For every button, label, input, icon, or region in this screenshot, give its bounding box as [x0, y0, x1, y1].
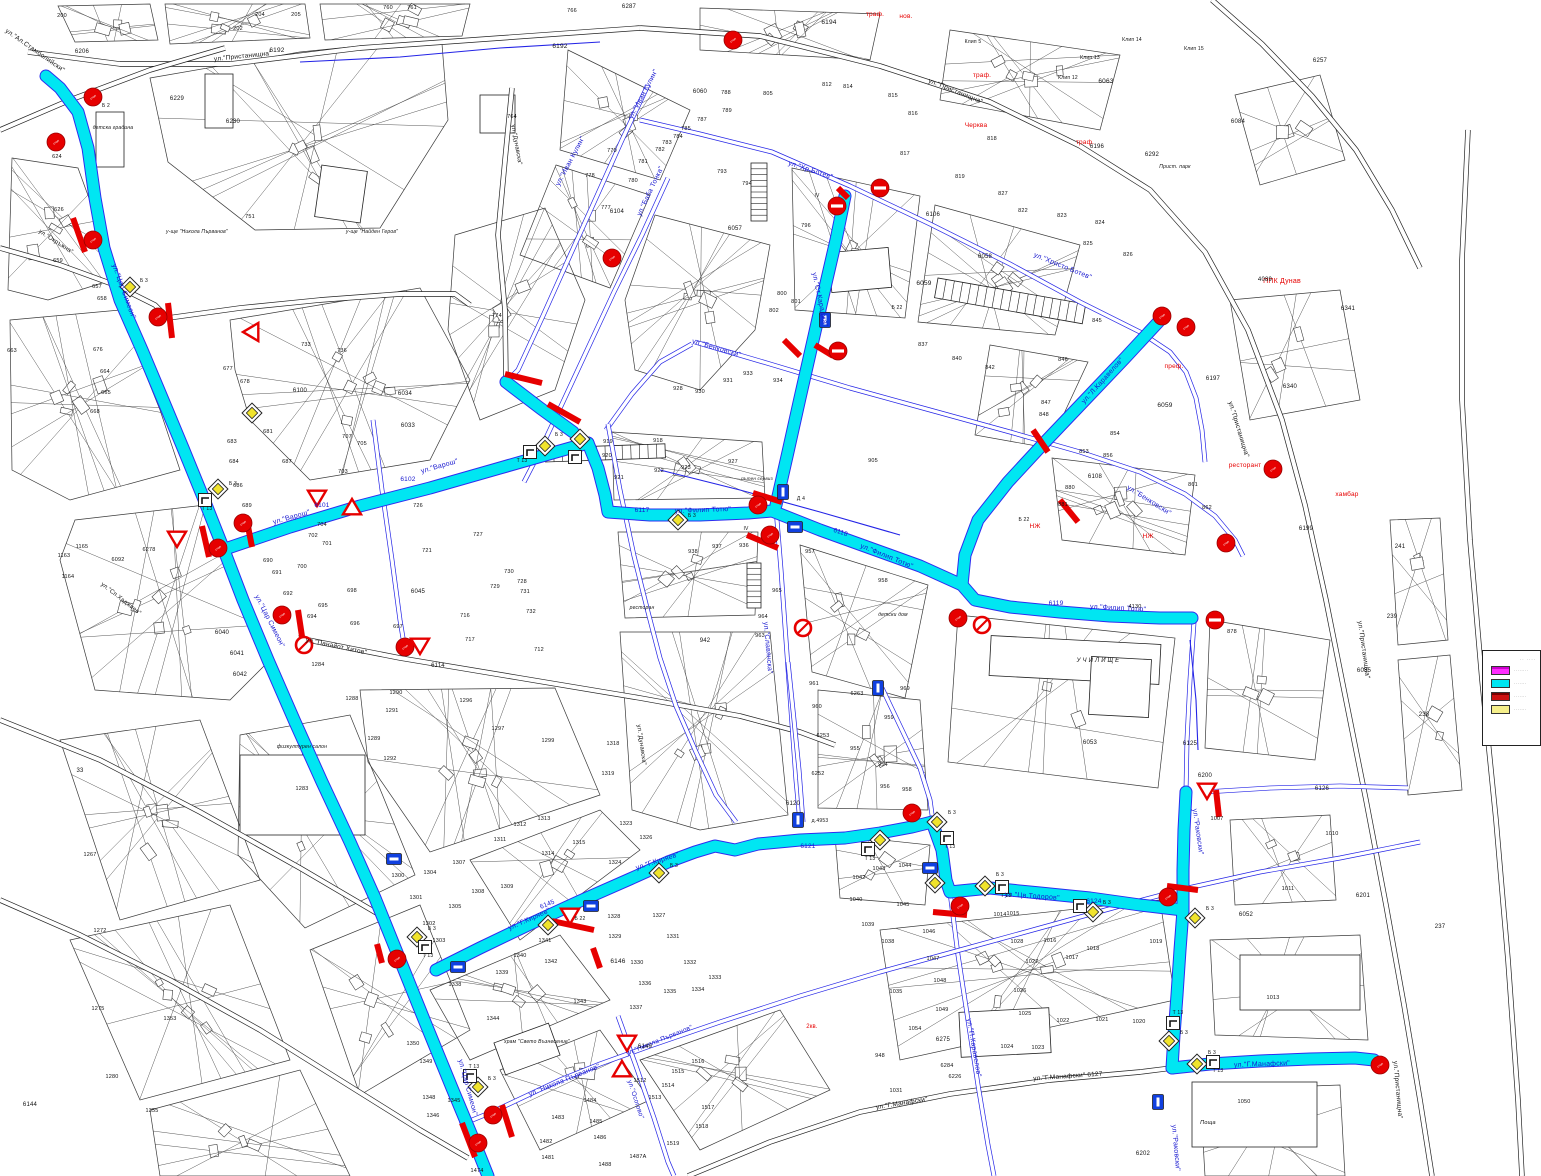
parcel-number-label: Т 13	[865, 856, 876, 862]
building-outline	[349, 974, 364, 990]
building-outline	[515, 280, 531, 294]
parcel-number-label: Т 13	[469, 1064, 480, 1070]
parcel-line	[889, 962, 1169, 988]
parcel-number-label: IV	[743, 526, 749, 532]
parcel-number-label: 1040	[849, 897, 862, 903]
parcel-number-label: 687	[282, 459, 292, 465]
parcel-number-label: 1329	[608, 934, 621, 940]
parcel-line	[894, 922, 1163, 1020]
street-label: ул."Раковски"	[1191, 808, 1204, 855]
parcel-number-label: 6092	[111, 557, 124, 563]
parcel-number-label: 6253	[816, 733, 829, 739]
parcel-line	[135, 513, 192, 697]
parcel-number-label: 6117	[635, 507, 650, 514]
building-outline	[991, 262, 1004, 275]
give-way-sign-icon	[613, 1061, 631, 1076]
junction-sign-icon	[569, 451, 582, 464]
parcel-number-label: 6257	[1313, 58, 1328, 64]
parcel-number-label: 845	[1092, 318, 1102, 324]
no-entry-bar	[1209, 618, 1221, 621]
parcel-number-label: 853	[1079, 449, 1089, 455]
parcel-line	[331, 8, 469, 40]
parcel-number-label: 1327	[652, 913, 665, 919]
parcel-number-label: 657	[92, 284, 102, 290]
parcel-line	[240, 318, 447, 425]
parcel-line	[236, 374, 456, 406]
parcel-number-label: Б 3	[1180, 1030, 1188, 1036]
parcel-number-label: 948	[875, 1053, 885, 1059]
parcel-number-label: 959	[884, 715, 894, 721]
building-outline	[1266, 839, 1277, 849]
building-outline	[1041, 965, 1054, 973]
parcel-number-label: 856	[1103, 453, 1113, 459]
parcel-number-label: 6084	[1231, 119, 1246, 125]
parcel-number-label: 964	[758, 614, 768, 620]
parcel-number-label: 4089	[1258, 277, 1273, 283]
parcel-number-label: 1163	[58, 553, 71, 559]
parcel-number-label: 696	[350, 621, 360, 627]
parcel-line	[857, 696, 881, 809]
parcel-line	[1404, 698, 1454, 739]
parcel-number-label: 785	[681, 126, 691, 132]
parcel-number-label: 6149	[638, 1044, 653, 1050]
parcel-number-label: 690	[263, 558, 273, 564]
parcel-line	[190, 4, 302, 43]
parcel-number-label: 1283	[295, 786, 308, 792]
parcel-line	[572, 170, 581, 277]
map-viewport[interactable]: { "map": { "width": 1541, "height": 1176…	[0, 0, 1541, 1176]
parcel-number-label: 854	[1110, 431, 1120, 437]
parcel-number-label: 6197	[1206, 376, 1221, 382]
parcel-number-label: 1015	[1006, 911, 1019, 917]
parcel-number-label: 1314	[541, 851, 554, 857]
street-label: ул."Иван Кулин"	[555, 135, 587, 187]
parcel-number-label: 1474	[470, 1168, 483, 1174]
parcel-number-label: 826	[1123, 252, 1133, 258]
legend-item-label: ·······	[1514, 694, 1527, 699]
parcel-number-label: 6106	[926, 212, 941, 218]
priority-road-sign-icon	[242, 403, 262, 423]
parcel-block	[320, 4, 470, 40]
parcel-number-label: 728	[517, 579, 527, 585]
parcel-number-label: 816	[908, 111, 918, 117]
street-label: ул."Ал.Стамболийски"	[4, 27, 67, 74]
annotation-label: Черква	[965, 122, 988, 129]
parcel-number-label: 1054	[908, 1026, 921, 1032]
parcel-number-label: 934	[773, 378, 783, 384]
parcel-line	[1250, 117, 1332, 151]
parcel-number-label: Т 13	[1213, 1068, 1224, 1074]
junction-sign-icon	[524, 446, 537, 459]
parcel-number-label: 1348	[422, 1095, 435, 1101]
parcel-number-label: 1344	[486, 1016, 499, 1022]
parcel-line	[804, 588, 923, 610]
parcel-number-label: 1330	[630, 960, 643, 966]
parcel-number-label: 237	[1435, 924, 1446, 930]
parcel-number-label: 774	[492, 313, 502, 319]
parcel-number-label: 1010	[1325, 831, 1338, 837]
annotation-label: НЖ	[1142, 533, 1153, 540]
parcel-number-label: 815	[888, 93, 898, 99]
parcel-number-label: 729	[490, 584, 500, 590]
parcel-number-label: 938	[688, 549, 698, 555]
parcel-block	[70, 905, 290, 1100]
building-outline	[96, 112, 124, 167]
street-label: ул."Дунавска"	[509, 124, 522, 165]
parcel-number-label: Клип 13	[1080, 55, 1100, 61]
parcel-number-label: 624	[52, 154, 62, 160]
parcel-number-label: 1025	[1018, 1011, 1031, 1017]
building-outline	[63, 381, 76, 395]
parcel-number-label: 6058	[978, 254, 993, 260]
parcel-block	[58, 4, 158, 42]
parcel-number-label: Б 3	[670, 863, 678, 869]
parcel-number-label: 777	[601, 205, 611, 211]
parcel-number-label: 764	[507, 114, 517, 120]
parcel-number-label: 6275	[936, 1037, 951, 1043]
parcel-number-label: 779	[607, 148, 617, 154]
parcel-line	[628, 243, 761, 323]
parcel-number-label: 931	[723, 378, 733, 384]
parcel-line	[301, 290, 408, 470]
legend-swatch	[1491, 666, 1510, 675]
road-blue	[506, 85, 648, 382]
parcel-number-label: 1486	[593, 1135, 606, 1141]
parcel-line	[61, 6, 149, 40]
annotation-label: ресторант	[1229, 462, 1262, 469]
parcel-number-label: Б 3	[555, 432, 563, 438]
parcel-number-label: Т 13	[423, 953, 434, 959]
building-outline	[50, 390, 64, 405]
parcel-number-label: 1018	[1086, 946, 1099, 952]
parcel-number-label: 761	[407, 5, 417, 11]
parcel-number-label: 6287	[622, 4, 637, 10]
parcel-number-label: 727	[473, 532, 483, 538]
parcel-number-label: 1332	[683, 960, 696, 966]
building-outline	[994, 995, 1002, 1008]
parcel-number-label: 1165	[76, 544, 89, 550]
street-label: ул."Пристанищна"	[1391, 1061, 1403, 1120]
parcel-number-label: 766	[567, 8, 577, 14]
parcel-number-label: Т 13	[1173, 1010, 1184, 1016]
road-closure-bar	[784, 340, 800, 356]
parcel-number-label: 840	[952, 356, 962, 362]
parcel-number-label: 1013	[1266, 995, 1279, 1001]
parcel-number-label: 861	[1188, 482, 1198, 488]
parcel-number-label: 1331	[666, 934, 679, 940]
parcel-number-label: 1308	[471, 889, 484, 895]
road-black	[28, 28, 640, 64]
parcel-number-label: 942	[700, 638, 711, 644]
parcel-number-label: Д 4	[797, 496, 805, 502]
parcel-number-label: 958	[878, 578, 888, 584]
junction-sign-icon	[941, 832, 954, 845]
parcel-number-label: 778	[585, 173, 595, 179]
road-black	[1212, 0, 1420, 268]
parcel-number-label: 6119	[1049, 600, 1064, 607]
parcel-number-label: 1017	[1065, 955, 1078, 961]
parcel-number-label: 730	[504, 569, 514, 575]
parcel-number-label: 817	[900, 151, 910, 157]
building-outline	[384, 387, 395, 395]
parcel-number-label: ресторан	[629, 605, 655, 611]
parcel-number-label: 1512	[633, 1078, 646, 1084]
road-blue	[373, 420, 406, 656]
parcel-number-label: 1318	[606, 741, 619, 747]
parcel-number-label: 33	[76, 768, 84, 774]
parcel-line	[1240, 362, 1354, 370]
parcel-number-label: Б 3	[1208, 1050, 1216, 1056]
parcel-number-label: 6278	[142, 547, 155, 553]
annotation-label: нов.	[899, 13, 912, 20]
one-way-sign-arrow	[791, 526, 800, 529]
building-outline	[182, 626, 191, 635]
parcel-number-label: 205	[291, 12, 301, 18]
parcel-line	[629, 281, 764, 327]
street-label: ул."Г.Манафски"	[875, 1096, 928, 1111]
parcel-number-label: 1345	[447, 1098, 460, 1104]
parcel-line	[1397, 518, 1431, 628]
parcel-number-label: 1043	[872, 866, 885, 872]
parcel-number-label: 1291	[385, 708, 398, 714]
parcel-number-label: 921	[614, 475, 624, 481]
street-label: ул."Никола Първанов"	[625, 1024, 694, 1057]
building-outline	[1105, 501, 1121, 519]
parcel-number-label: 6230	[226, 119, 241, 125]
road-black	[1212, 0, 1420, 268]
building-outline	[305, 146, 319, 164]
parcel-number-label: 6108	[1088, 474, 1103, 480]
parcel-number-label: 1272	[93, 928, 106, 934]
parcel-number-label: 782	[655, 147, 665, 153]
legend-item-label: ·······	[1514, 681, 1527, 686]
parcel-number-label: 878	[1227, 629, 1237, 635]
parcel-number-label: 6114	[431, 663, 445, 669]
parcel-line	[587, 175, 593, 282]
parcel-number-label: 239	[1387, 614, 1398, 620]
parcel-block	[620, 632, 788, 830]
parcel-number-label: 717	[465, 637, 475, 643]
parcel-number-label: 1518	[695, 1124, 708, 1130]
building-outline	[297, 841, 305, 851]
parcel-number-label: Б 2	[102, 103, 110, 109]
building-outline	[119, 22, 131, 35]
parcel-number-label: 6104	[610, 209, 625, 215]
parcel-number-label: Б 22	[574, 916, 585, 922]
parcel-number-label: Б 3	[688, 513, 696, 519]
parcel-number-label: 705	[357, 441, 367, 447]
parcel-line	[813, 549, 871, 688]
street-label: ул."Пристанищна"	[927, 78, 984, 106]
parcel-number-label: 736	[337, 348, 347, 354]
parcel-number-label: 848	[1039, 412, 1049, 418]
parcel-line	[679, 1046, 788, 1109]
parcel-number-label: 818	[987, 136, 997, 142]
parcel-number-label: 1315	[572, 840, 585, 846]
parcel-number-label: 825	[1083, 241, 1093, 247]
parcel-number-label: 1021	[1095, 1017, 1108, 1023]
parcel-number-label: 6085	[1357, 668, 1372, 674]
parcel-number-label: 1309	[500, 884, 513, 890]
parcel-number-label: 1048	[933, 978, 946, 984]
highlight-street	[962, 585, 1192, 618]
parcel-number-label: 1319	[601, 771, 614, 777]
parcel-line	[80, 553, 225, 634]
one-way-sign-arrow	[454, 966, 463, 969]
road-closure-bar	[593, 948, 600, 968]
parcel-line	[502, 848, 571, 902]
parcel-line	[807, 593, 926, 622]
building-outline	[359, 1032, 372, 1044]
parcel-number-label: у-ще "Найден Геров"	[345, 228, 398, 235]
building-outline	[494, 1023, 560, 1075]
parcel-number-label: 6100	[293, 388, 308, 394]
street-label: ул."Иван Кулин"	[628, 68, 660, 120]
parcel-number-label: 668	[90, 409, 100, 415]
parcel-line	[889, 907, 1161, 986]
street-label: ул."Христо Ботев"	[1033, 252, 1093, 282]
parcel-number-label: 702	[308, 533, 318, 539]
building-outline	[364, 992, 378, 1008]
parcel-number-label: 6124	[1086, 898, 1101, 905]
parcel-number-label: 1519	[666, 1141, 679, 1147]
parcel-number-label: 814	[843, 84, 853, 90]
parcel-number-label: 1045	[896, 902, 909, 908]
parcel-number-label: 202	[233, 26, 243, 32]
parcel-number-label: 6263	[850, 691, 863, 697]
parcel-number-label: 6292	[1145, 152, 1160, 158]
building-outline	[1010, 383, 1021, 391]
parcel-number-label: 1304	[423, 870, 436, 876]
parcel-line	[323, 987, 470, 1029]
road-closure-bar	[202, 526, 209, 557]
parcel-number-label: Клип 12	[1058, 75, 1078, 81]
legend-swatch	[1491, 705, 1510, 714]
parcel-line	[985, 376, 1079, 381]
parcel-number-label: 1311	[494, 837, 507, 843]
parcel-number-label: 1303	[432, 938, 445, 944]
parcel-number-label: 664	[100, 369, 110, 375]
parcel-number-label: 665	[101, 390, 111, 396]
parcel-number-label: 681	[263, 429, 273, 435]
parcel-number-label: 961	[809, 681, 819, 687]
parcel-number-label: 6226	[948, 1074, 961, 1080]
parcel-block	[560, 50, 690, 180]
parcel-number-label: у-ще "Никола Първанов"	[165, 229, 228, 235]
parcel-line	[1278, 294, 1297, 415]
parcel-number-label: 703	[338, 469, 348, 475]
no-entry-bar	[832, 349, 844, 352]
parcel-number-label: 694	[307, 614, 317, 620]
parcel-number-label: 6120	[786, 801, 801, 807]
parcel-number-label: 1515	[671, 1069, 684, 1075]
parcel-number-label: пътен сервиз	[741, 476, 773, 481]
building-outline	[564, 849, 575, 859]
parcel-line	[968, 921, 1100, 1017]
parcel-number-label: Прист. парк	[1159, 164, 1191, 170]
parcel-number-label: 1038	[881, 939, 894, 945]
road-closure-bar	[73, 218, 85, 252]
parcel-number-label: 238	[1419, 712, 1430, 718]
parcel-number-label: 1299	[541, 738, 554, 744]
parcel-number-label: 960	[812, 704, 822, 710]
parcel-number-label: 801	[791, 299, 801, 305]
parcel-number-label: 846	[1058, 357, 1068, 363]
building-outline	[315, 165, 368, 223]
street-label: ул."Дунавска"	[635, 724, 647, 765]
parcel-number-label: 936	[739, 543, 749, 549]
parcel-number-label: 760	[383, 5, 393, 11]
city-map-canvas[interactable]: стопстопстопстопстопстопстопстопстопстоп…	[0, 0, 1541, 1176]
parcel-number-label: 1284	[311, 662, 324, 668]
building-outline	[1257, 676, 1267, 684]
legend-title: ·· ····	[1491, 657, 1536, 662]
building-outline	[1071, 710, 1086, 727]
road-closure-bar	[552, 921, 594, 930]
parcel-line	[1255, 119, 1333, 166]
parcel-number-label: 697	[393, 624, 403, 630]
parcel-number-label: 6340	[1283, 384, 1298, 390]
parcel-number-label: Б 22	[1018, 517, 1029, 523]
building-outline	[1276, 125, 1288, 138]
building-outline	[794, 22, 805, 38]
parcel-number-label: Б 3	[229, 481, 237, 487]
parcel-line	[81, 625, 256, 637]
parcel-number-label: 689	[242, 503, 252, 509]
building-outline	[209, 1144, 219, 1157]
parcel-number-label: 704	[317, 522, 327, 528]
parcel-number-label: 788	[721, 90, 731, 96]
parcel-number-label: 626	[54, 207, 64, 213]
parcel-number-label: 1049	[935, 1007, 948, 1013]
one-way-sign-arrow	[782, 488, 785, 497]
parcel-number-label: Клип 5	[965, 39, 982, 45]
road-closure-bar	[502, 1105, 512, 1137]
parcel-number-label: 676	[93, 347, 103, 353]
street-label: ул."Никола Първанов"	[528, 1063, 602, 1098]
parcel-number-label: 6045	[411, 589, 426, 595]
building-outline	[1410, 557, 1424, 570]
parcel-number-label: 1292	[383, 756, 396, 762]
parcel-line	[428, 689, 512, 824]
building-outline	[462, 736, 478, 750]
parcel-number-label: 1022	[1056, 1018, 1069, 1024]
parcel-number-label: 920	[602, 453, 612, 459]
parcel-number-label: 1297	[491, 726, 504, 732]
parcel-number-label: 802	[769, 308, 779, 314]
parcel-number-label: 1346	[426, 1113, 439, 1119]
parcel-number-label: 659	[53, 258, 63, 264]
parcel-number-label: 1028	[1010, 939, 1023, 945]
parcel-number-label: 1517	[701, 1105, 714, 1111]
parcel-number-label: 1341	[538, 938, 551, 944]
parcel-number-label: 1312	[513, 822, 526, 828]
parcel-number-label: 918	[653, 438, 663, 444]
parcel-number-label: 905	[868, 458, 878, 464]
parcel-number-label: 658	[97, 296, 107, 302]
parcel-line	[1208, 678, 1318, 739]
parcel-number-label: 6284	[940, 1063, 953, 1069]
parcel-number-label: 812	[822, 82, 832, 88]
parcel-number-label: 6059	[916, 280, 931, 287]
building-outline	[202, 984, 217, 997]
parcel-number-label: 1328	[607, 914, 620, 920]
parcel-number-label: 933	[743, 371, 753, 377]
parcel-line	[826, 566, 866, 676]
road-closure-bar	[168, 303, 172, 338]
parcel-number-label: 1026	[1013, 988, 1026, 994]
parcel-block	[150, 44, 448, 230]
